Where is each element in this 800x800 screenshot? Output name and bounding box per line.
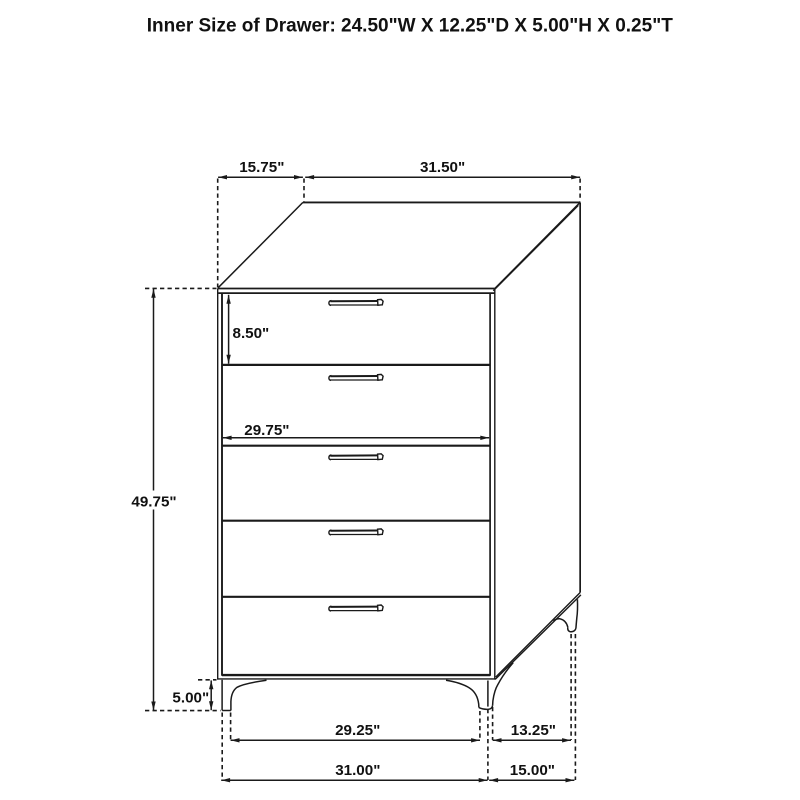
svg-text:Inner Size of Drawer: 24.50"W: Inner Size of Drawer: 24.50"W X 12.25"D … (147, 16, 673, 37)
svg-text:31.00": 31.00" (335, 762, 380, 779)
svg-text:15.00": 15.00" (510, 762, 555, 779)
svg-text:29.25": 29.25" (335, 722, 380, 739)
svg-text:8.50": 8.50" (233, 325, 270, 342)
svg-text:13.25": 13.25" (511, 722, 556, 739)
svg-text:15.75": 15.75" (239, 159, 284, 176)
svg-text:31.50": 31.50" (420, 159, 465, 176)
svg-text:49.75": 49.75" (131, 494, 176, 511)
svg-text:5.00": 5.00" (172, 689, 209, 706)
svg-text:29.75": 29.75" (244, 422, 289, 439)
